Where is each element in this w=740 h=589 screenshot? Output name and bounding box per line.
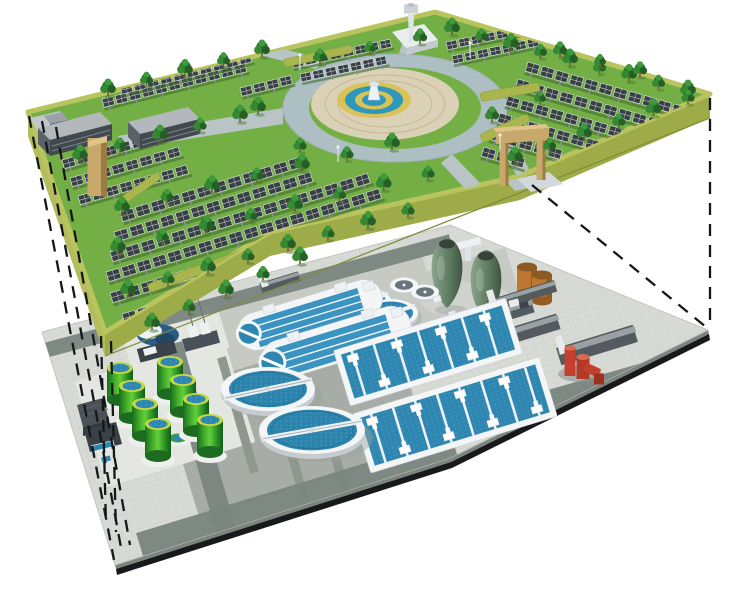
egg-digester-cap — [478, 252, 494, 261]
pump-foot — [594, 374, 604, 385]
entrance-gate-post-shade — [506, 142, 509, 186]
pump-column-top — [565, 346, 576, 351]
tower-head-top — [407, 3, 415, 7]
gate-pillar-shade — [101, 140, 107, 197]
pump-column — [565, 348, 576, 376]
cutaway-illustration-svg — [0, 0, 740, 589]
fountain-statue — [368, 82, 380, 101]
illustration-canvas — [0, 0, 740, 589]
egg-digester-cap — [439, 240, 455, 249]
pump-column-top — [577, 354, 590, 360]
entrance-gate-post-shade — [543, 134, 546, 180]
cutaway-illustration — [0, 0, 740, 589]
egg-gantry-leg — [465, 247, 471, 261]
sludge-storage-tank — [193, 414, 227, 463]
sludge-storage-tank — [141, 418, 175, 467]
